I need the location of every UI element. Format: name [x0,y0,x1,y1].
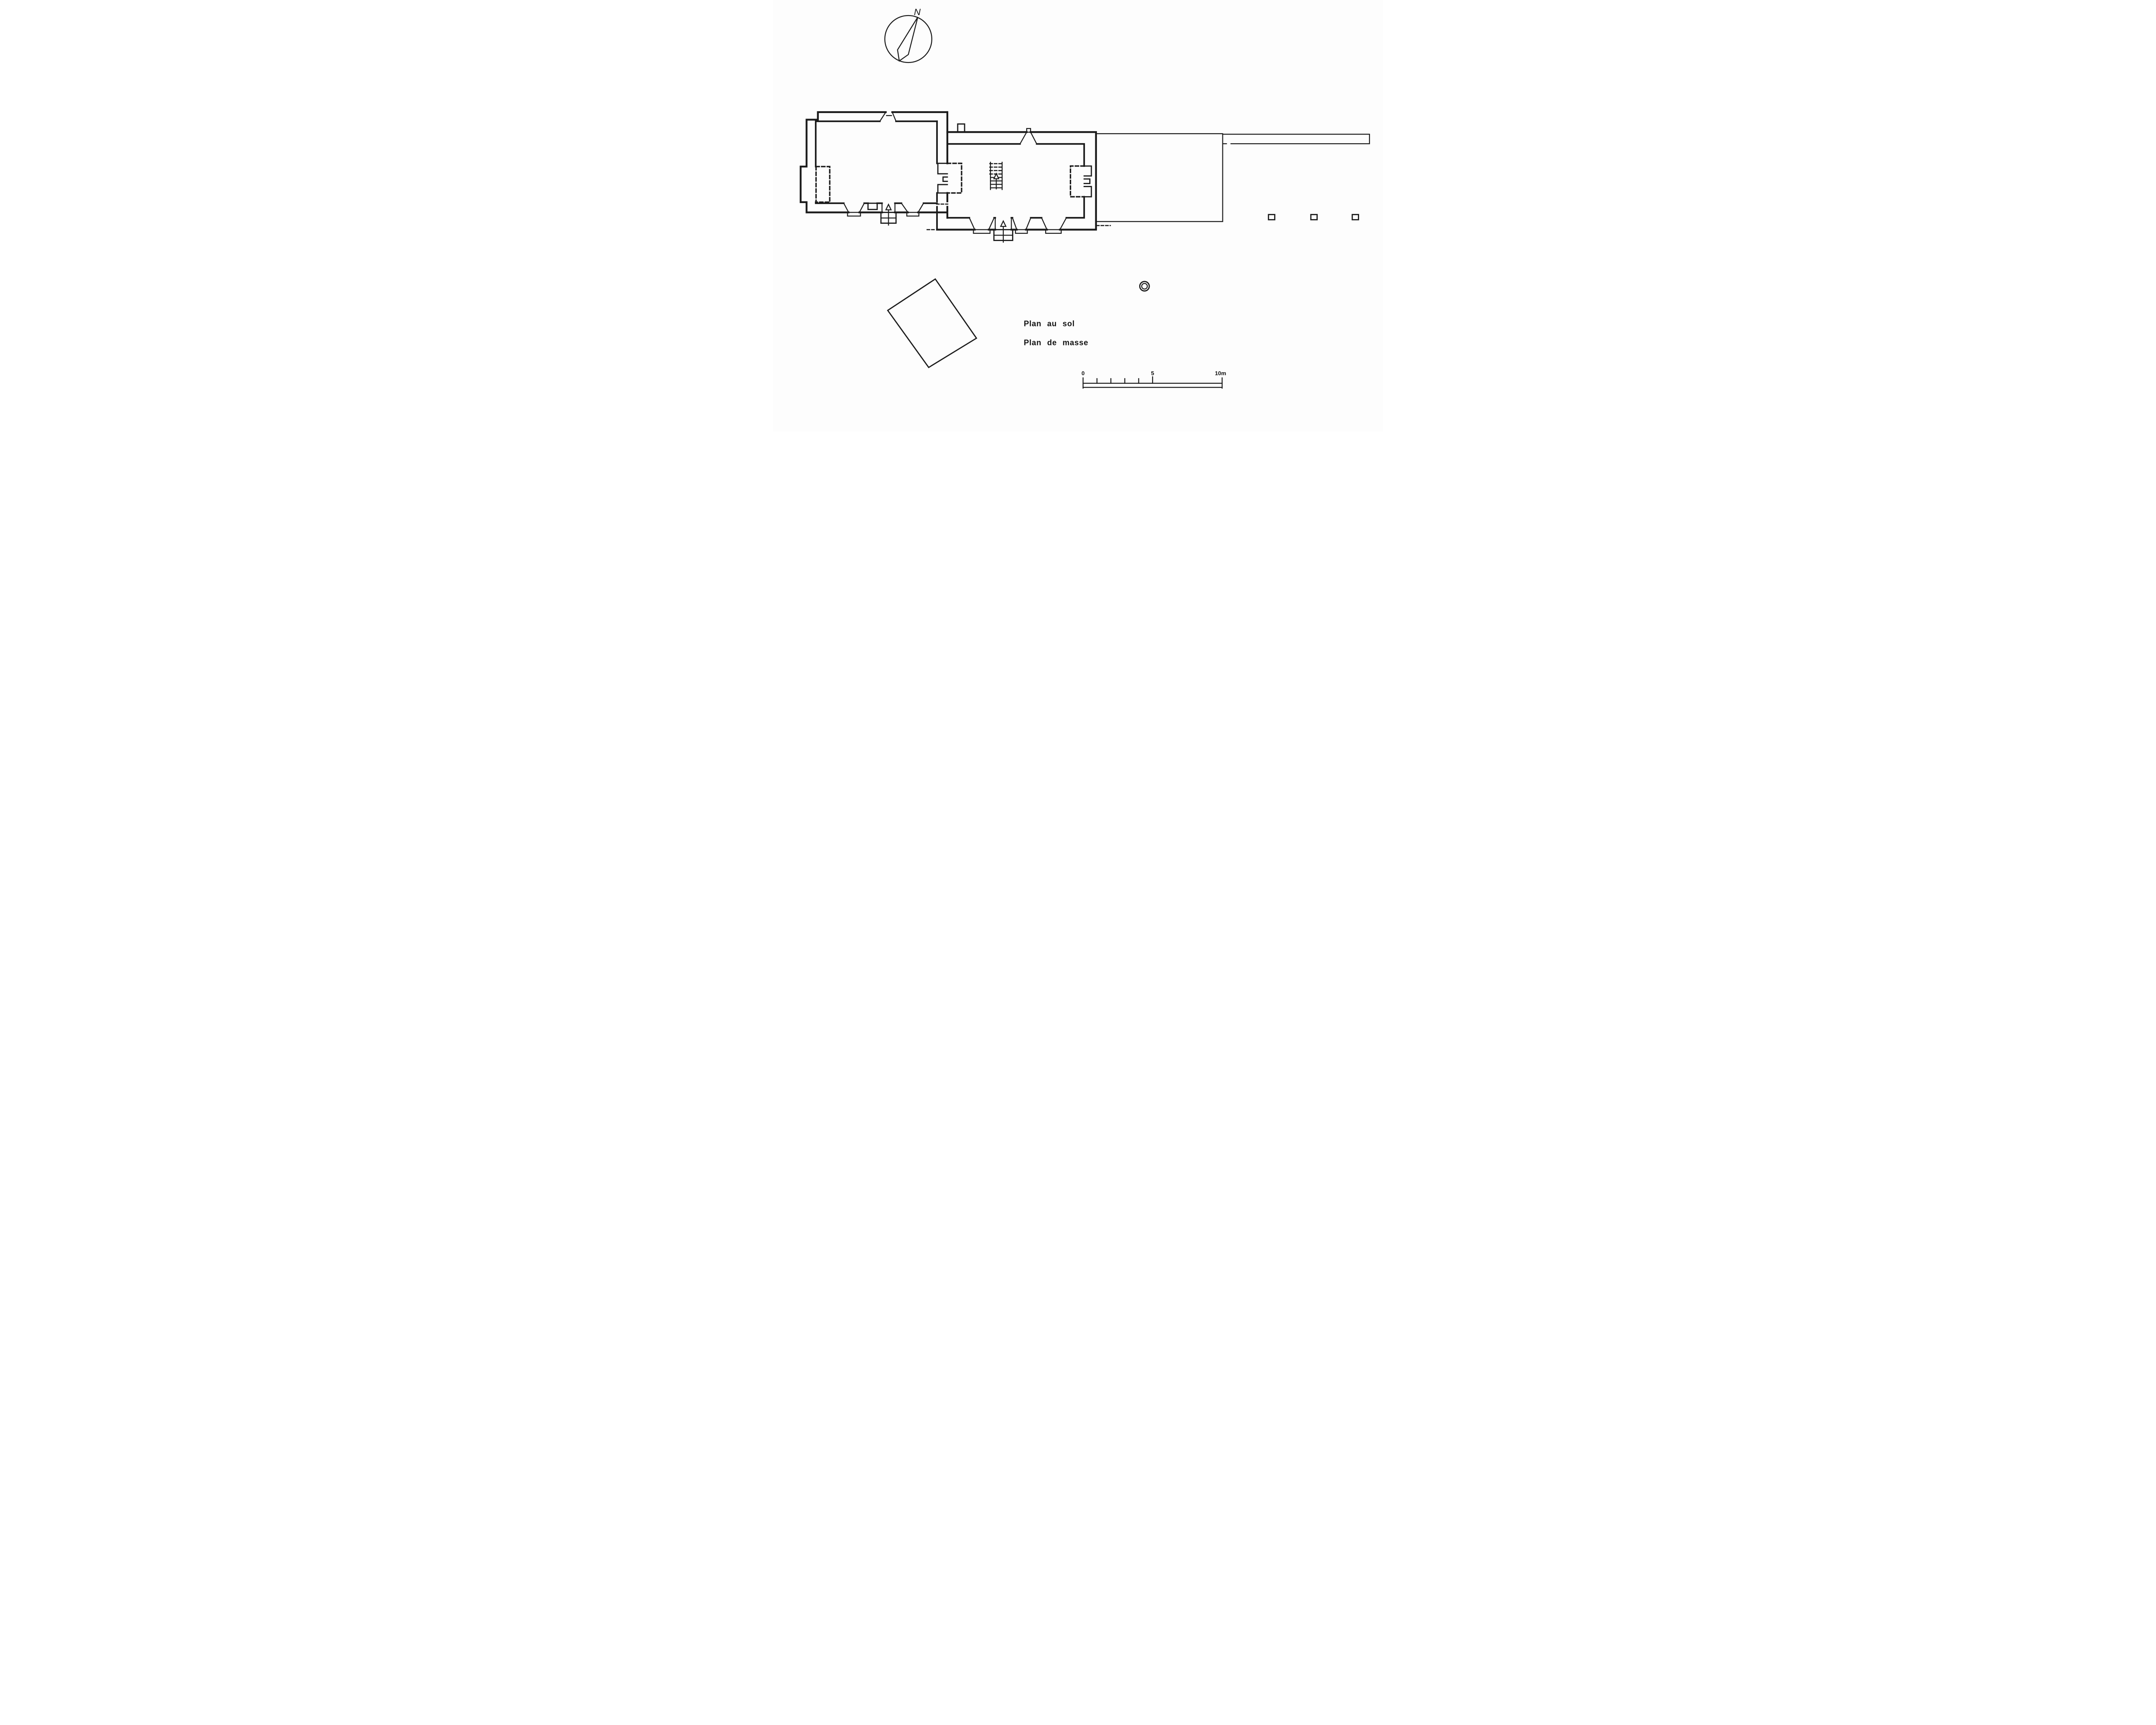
west-room-inner-wall [816,121,937,203]
chimney-notch [958,124,965,132]
well-outer-ring [1140,282,1149,291]
title-site-plan: Plan de masse [1024,339,1088,347]
main-room-outer-wall [937,132,1096,229]
main-room [927,124,1110,242]
scale-label-0: 0 [1081,370,1084,376]
fireplace-east-hood [1071,166,1084,197]
plan-sheet: N [773,0,1383,431]
main-room-south-window-2 [1012,218,1031,230]
main-room-south-window-3-sill [1046,230,1061,234]
compass-needle [898,17,918,61]
site-plan [888,134,1369,367]
scale-label-5: 5 [1151,370,1154,376]
west-room [801,112,947,225]
scale-label-10m: 10m [1215,370,1226,376]
north-compass: N [885,7,932,63]
courtyard-enclosure [1097,134,1223,222]
fireplace-east-wall [1071,166,1092,197]
west-room-outer-wall [801,112,947,213]
entrance-main-room [994,218,1013,242]
well-inner-ring [1142,283,1147,289]
west-room-south-window-1 [844,203,865,212]
main-room-inner-wall [947,144,1084,218]
well [1140,282,1149,291]
pillar-base-3 [1352,215,1359,220]
pillar-base-1 [1269,215,1275,220]
west-room-north-window [880,112,896,121]
main-room-north-window [1020,132,1037,144]
plan-titles: Plan au sol Plan de masse [1024,319,1088,347]
north-label: N [914,7,921,17]
fireplace-east-niches [1084,166,1091,197]
architectural-drawing: N [773,0,1383,431]
fireplace-party-wall-niches [938,163,947,193]
west-room-south-window-2 [902,203,924,212]
entry-arrow-head [1001,221,1006,227]
compass-circle [885,16,932,63]
fireplace-west-room [816,166,830,202]
pillar-base-2 [1311,215,1317,220]
main-room-south-window-1-sill [974,230,990,234]
main-room-south-window-1 [969,218,994,230]
west-room-wall-niche [868,203,877,210]
entry-arrow-head [886,204,891,210]
scale-bar-minor-ticks [1097,377,1153,383]
scale-bar-lines [1083,383,1222,388]
entrance-west-room [881,203,896,225]
main-room-south-window-3 [1042,218,1067,230]
title-ground-plan: Plan au sol [1024,319,1075,328]
fireplace-party-wall-hood [947,163,962,193]
scale-bar: 0 5 10m [1081,370,1226,388]
boundary-wall [1223,134,1370,144]
outbuilding [888,279,977,367]
staircase [990,162,1003,189]
